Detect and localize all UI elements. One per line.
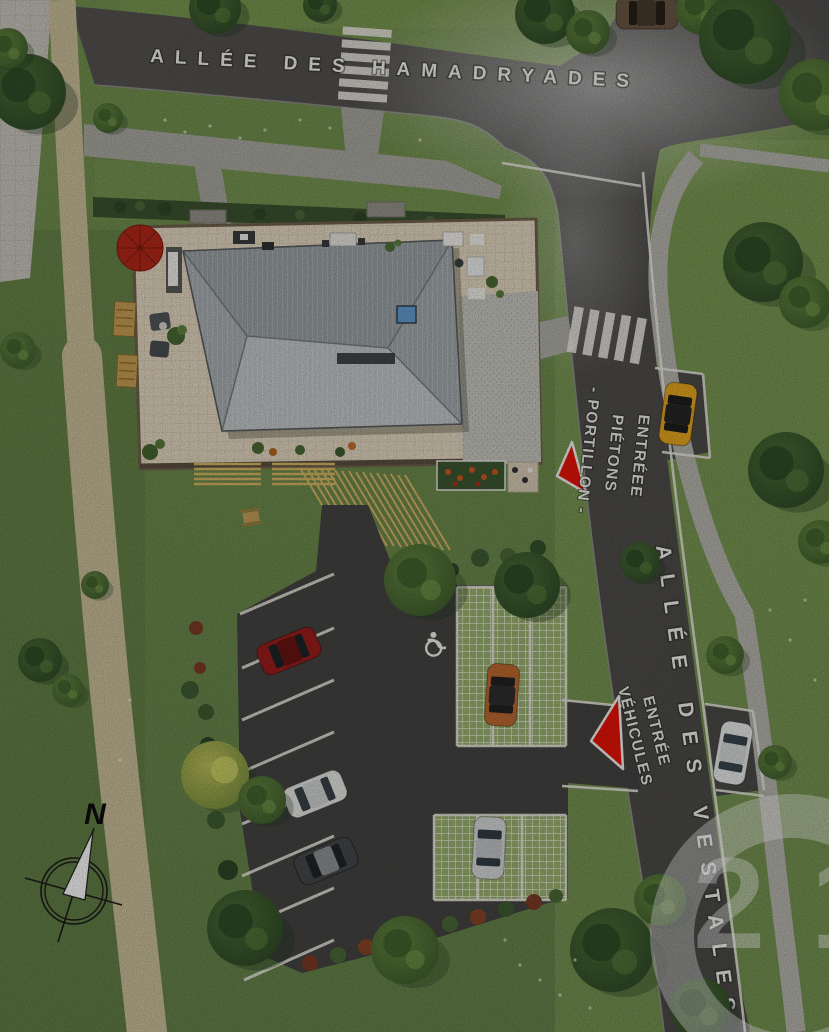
- site-plan-canvas: ALLÉE DES HAMADRYADES ALLÉE DES VESTALES: [0, 0, 829, 1032]
- site-plan-render: ALLÉE DES HAMADRYADES ALLÉE DES VESTALES: [0, 0, 829, 1032]
- texture-grain-overlay: [0, 0, 829, 1032]
